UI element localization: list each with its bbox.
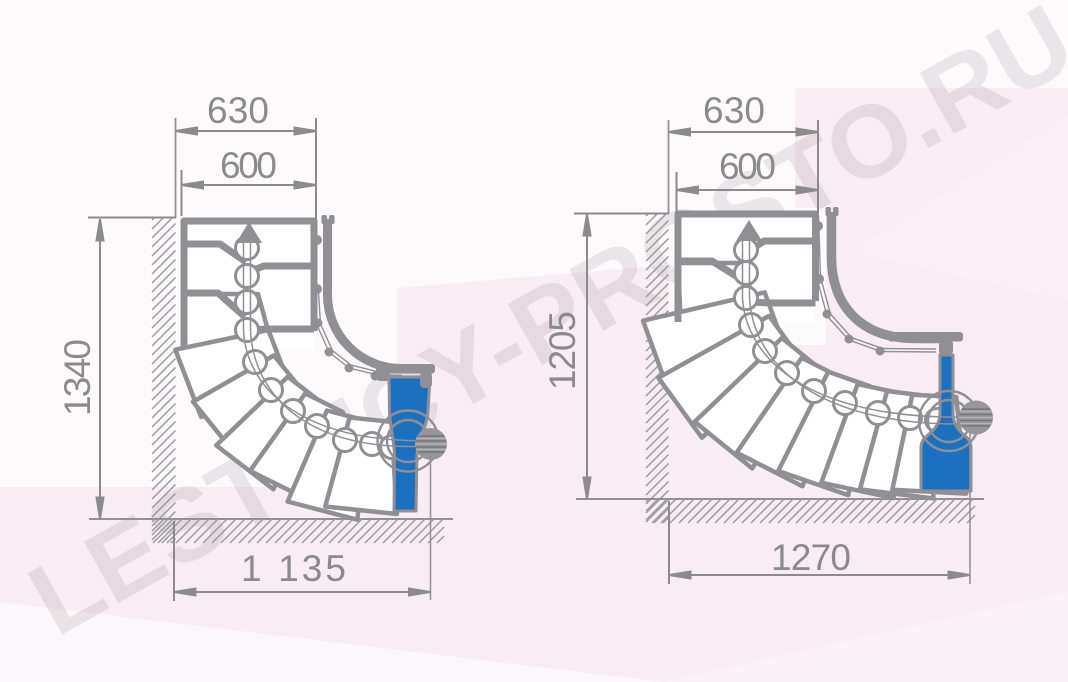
- svg-text:630: 630: [703, 90, 766, 131]
- svg-text:630: 630: [207, 90, 270, 131]
- svg-text:1340: 1340: [57, 338, 98, 416]
- svg-text:600: 600: [220, 145, 278, 186]
- svg-text:600: 600: [719, 146, 777, 187]
- svg-text:1270: 1270: [771, 537, 852, 578]
- svg-text:1205: 1205: [542, 310, 583, 390]
- svg-text:1 135: 1 135: [241, 548, 347, 589]
